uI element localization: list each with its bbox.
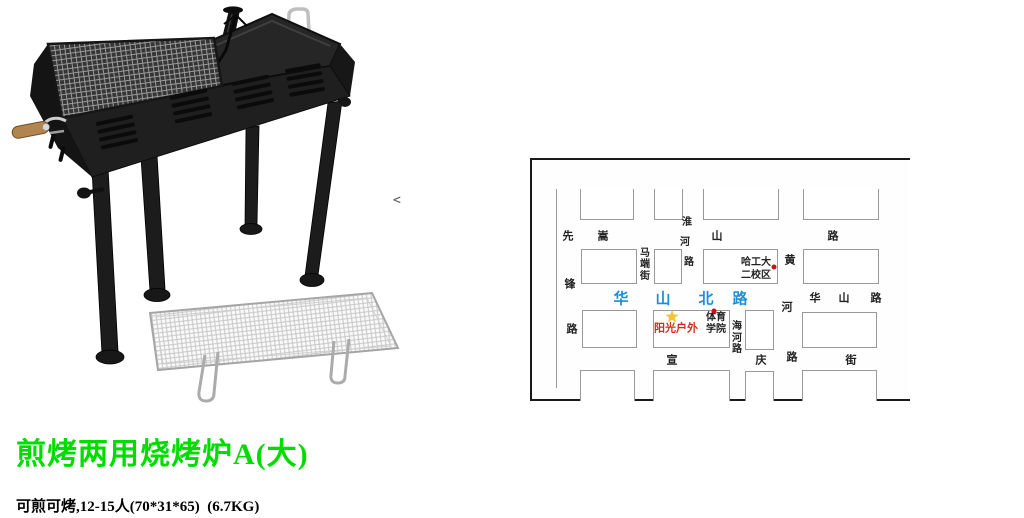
road-label-songshan-road: 路 — [828, 232, 839, 243]
road-label-maduan-street: 端 — [640, 260, 650, 270]
sports-institute-label: 体育 — [706, 313, 726, 323]
road-label-songshan-road: 山 — [712, 232, 723, 243]
sports-institute-label: 学院 — [706, 325, 726, 335]
hit-second-campus-label: 二校区 — [741, 271, 771, 281]
city-block — [654, 249, 682, 284]
city-block — [745, 371, 774, 401]
city-block — [580, 189, 634, 220]
product-title: 煎烤两用烧烤炉A(大) — [16, 429, 309, 473]
city-block — [653, 370, 730, 401]
road-label-huashan-north-road: 华 — [613, 292, 628, 307]
city-block — [580, 370, 635, 401]
chevron-left-icon[interactable]: < — [393, 193, 401, 208]
city-block — [581, 249, 637, 284]
road-label-huashan-north-road: 路 — [732, 292, 747, 307]
road-label-xianfeng-road: 路 — [567, 325, 578, 336]
road-label-haihe-road: 海 — [732, 322, 742, 332]
city-block — [802, 370, 877, 401]
road-label-huashan-north-road: 北 — [698, 292, 713, 307]
city-block — [803, 189, 879, 220]
road-label-xuanqing-street: 街 — [846, 356, 857, 367]
road-label-maduan-street: 马 — [640, 249, 650, 259]
road-label-huashan-road: 路 — [871, 294, 882, 305]
bbq-grill-image — [0, 0, 412, 428]
road-label-maduan-street: 街 — [640, 272, 650, 282]
road-label-huaihe-road: 河 — [680, 238, 690, 248]
product-photo: < — [0, 0, 412, 428]
location-dot — [712, 309, 717, 314]
city-block — [654, 189, 683, 220]
road-label-xuanqing-street: 宣 — [667, 356, 678, 367]
road-label-huashan-road: 华 — [810, 294, 821, 305]
road-label-songshan-road: 嵩 — [598, 232, 609, 243]
road-label-huashan-road: 山 — [839, 294, 850, 305]
location-dot — [772, 265, 777, 270]
road-label-huaihe-road: 路 — [684, 258, 694, 268]
city-block — [745, 310, 774, 350]
location-map: 先锋路嵩山路马端街淮河路黄河路海河路华山北路华山路宣庆街哈工大二校区体育学院阳光… — [530, 158, 910, 401]
road-label-haihe-road: 河 — [732, 334, 742, 344]
road-label-xianfeng-road: 先 — [563, 232, 574, 243]
road-label-haihe-road: 路 — [732, 345, 742, 355]
road-label-huanghe-road: 河 — [782, 303, 793, 314]
product-page: < 先锋路嵩山路马端街淮河路黄河路海河路华山北路华山路宣庆街哈工大二校区体育学院… — [0, 0, 1024, 518]
city-block — [802, 312, 877, 348]
product-specs: 可煎可烤,12-15人(70*31*65) (6.7KG) — [16, 495, 259, 516]
road-label-xianfeng-road: 锋 — [565, 280, 576, 291]
road-label-xuanqing-street: 庆 — [756, 356, 767, 367]
city-block — [582, 310, 637, 348]
road-label-huanghe-road: 黄 — [785, 256, 796, 267]
star-marker-icon: ★ — [665, 310, 679, 326]
road-label-huashan-north-road: 山 — [655, 292, 670, 307]
spare-wire-grate — [150, 293, 398, 401]
road-label-huaihe-road: 淮 — [682, 218, 692, 228]
city-block — [803, 249, 879, 284]
road-line — [556, 189, 557, 388]
hit-second-campus-label: 哈工大 — [741, 258, 771, 268]
road-label-huanghe-road: 路 — [787, 353, 798, 364]
city-block — [703, 189, 779, 220]
